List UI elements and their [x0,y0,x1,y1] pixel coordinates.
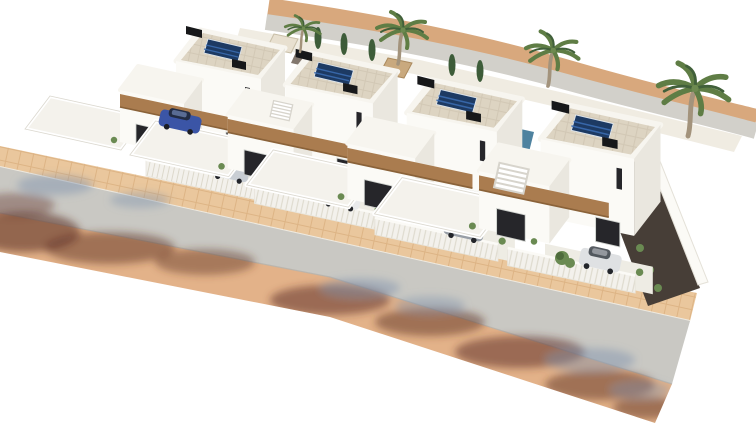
plant [338,193,345,200]
plant [636,268,643,275]
slit-window [617,168,623,190]
architectural-render [0,0,756,432]
plant [469,222,476,229]
plant [499,238,506,245]
plant [218,163,225,170]
slit-window [480,140,485,161]
garage-glass-door [596,217,620,247]
plant [531,238,538,245]
render-canvas [0,0,756,432]
plant [111,137,117,143]
